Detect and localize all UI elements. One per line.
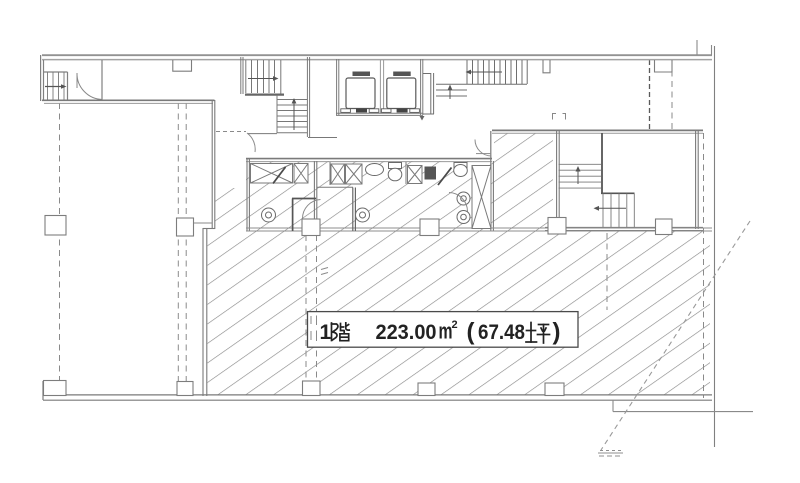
svg-text:m: m xyxy=(439,319,453,344)
svg-text:223.00: 223.00 xyxy=(376,321,437,344)
svg-text:67.48: 67.48 xyxy=(478,321,525,344)
svg-text:): ) xyxy=(553,319,561,346)
svg-text:1: 1 xyxy=(320,321,332,344)
svg-text:(: ( xyxy=(467,319,475,346)
svg-text:2: 2 xyxy=(452,319,458,331)
